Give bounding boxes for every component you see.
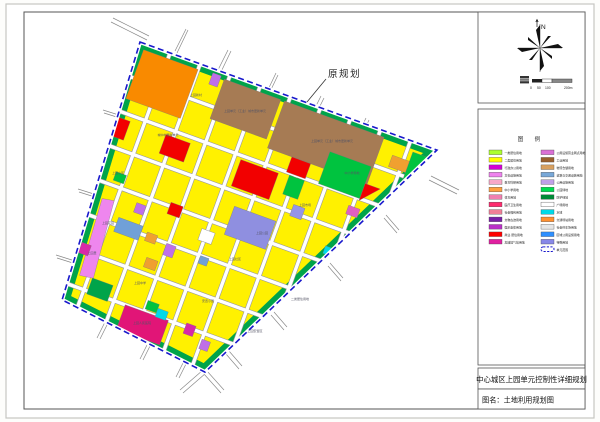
legend-swatch <box>489 165 502 170</box>
legend-swatch <box>541 232 554 237</box>
parcel-label: 二类居住用地 <box>291 296 309 301</box>
legend-swatch <box>541 157 554 162</box>
legend-label: 行政办公用地 <box>505 165 522 170</box>
legend-swatch <box>489 180 502 185</box>
scale-tick-0: 0 <box>530 86 532 90</box>
legend-label: 公用设施营业网点用地 <box>557 150 586 155</box>
legend-label: 公用设施用地 <box>557 180 574 185</box>
legend-box <box>478 109 585 365</box>
legend-swatch <box>541 239 554 244</box>
legend-label: 教育科研用地 <box>505 180 522 185</box>
legend-label: 商业·居住用地 <box>505 232 523 237</box>
legend-label: 水域 <box>557 210 563 215</box>
sheet-title: 中心城区上园单元控制性详细规划 <box>476 375 587 384</box>
legend-label: 文化设施用地 <box>505 172 522 177</box>
legend-label: 文物古迹用地 <box>505 217 522 222</box>
legend-swatch <box>541 225 554 230</box>
legend-swatch <box>541 150 554 155</box>
parcel-label: 上园人民医院 <box>133 320 151 325</box>
legend-swatch <box>489 210 502 215</box>
legend-label: 工业用地 <box>557 157 569 162</box>
legend-label: 公园绿地 <box>557 187 569 192</box>
parcel-label: 上园社区 <box>229 256 241 261</box>
legend-label: 交通场站用地 <box>557 217 574 222</box>
legend-label: 社会停车场用地 <box>557 224 577 229</box>
legend-swatch <box>489 150 502 155</box>
legend-swatch <box>489 202 502 207</box>
legend-title: 图 例 <box>518 135 545 143</box>
legend-label: 二类居住用地 <box>505 157 522 162</box>
legend-swatch <box>489 195 502 200</box>
parcel-label: 上园安置区 <box>247 328 262 333</box>
legend-swatch <box>541 217 554 222</box>
planning-map-sheet: 上园单元（工业）城市更新单元上园单元（工业）城市更新单元上园新村城中村更新单元上… <box>0 0 600 422</box>
parcel-label: 上园公园 <box>256 230 268 235</box>
legend-swatch <box>541 210 554 215</box>
parcel-label: 上园里 <box>87 250 96 255</box>
legend-swatch <box>541 187 554 192</box>
parcel-label: 安置小区 <box>202 298 214 303</box>
parcel-label: 上园单元（工业）城市更新单元 <box>224 108 266 113</box>
legend-label: 特殊用地 <box>557 239 569 244</box>
annotation-text: 原规划 <box>328 68 361 80</box>
legend-label: 防护绿地 <box>557 195 569 200</box>
legend-swatch <box>541 180 554 185</box>
legend-label: 区域公用设施用地 <box>557 232 580 237</box>
legend-label: 娱乐康体用地 <box>505 224 522 229</box>
legend-swatch-boundary <box>541 247 554 252</box>
parcel-label: 中小学用地 <box>344 170 359 175</box>
legend-swatch <box>489 217 502 222</box>
legend-swatch <box>489 172 502 177</box>
legend-label: 中小学用地 <box>505 187 520 192</box>
legend-label: 道路与交通设施用地 <box>557 172 583 177</box>
legend-swatch <box>489 157 502 162</box>
parcel-label: 城中村更新单元 <box>157 132 178 137</box>
parcel-label: 上园新村 <box>190 92 202 97</box>
scale-tick-100: 100 <box>545 86 551 90</box>
legend-swatch <box>489 232 502 237</box>
legend-swatch <box>489 187 502 192</box>
legend-swatch <box>541 172 554 177</box>
legend-label: 广场用地 <box>557 202 569 207</box>
scale-end-label: 200m <box>564 86 573 90</box>
legend-swatch <box>541 195 554 200</box>
legend-label: 社会福利用地 <box>505 210 522 215</box>
legend-swatch <box>489 225 502 230</box>
parcel-label: 上园市场 <box>299 202 311 207</box>
legend-label: 体育用地 <box>505 195 517 200</box>
legend-label: 医疗卫生用地 <box>505 202 522 207</box>
legend-swatch <box>541 165 554 170</box>
legend-swatch <box>541 202 554 207</box>
parcel-label: 上园中学 <box>134 280 146 285</box>
legend-label: 加油加气站用地 <box>505 239 525 244</box>
parcel-label: 上园小区 <box>112 170 124 175</box>
parcel-label: 上园单元（工业）城市更新单元 <box>311 138 353 143</box>
legend-label: 一类居住用地 <box>505 150 522 155</box>
legend-label: 单元范围 <box>557 247 569 252</box>
north-label: N <box>541 24 546 31</box>
sheet-name: 图名：土地利用规划图 <box>482 396 554 405</box>
scale-tick-50: 50 <box>537 86 541 90</box>
sheet-svg: 上园单元（工业）城市更新单元上园单元（工业）城市更新单元上园新村城中村更新单元上… <box>0 0 600 422</box>
parcel-label: 上园花园 <box>102 220 114 225</box>
legend-label: 物流仓储用地 <box>557 165 574 170</box>
legend-swatch <box>489 239 502 244</box>
